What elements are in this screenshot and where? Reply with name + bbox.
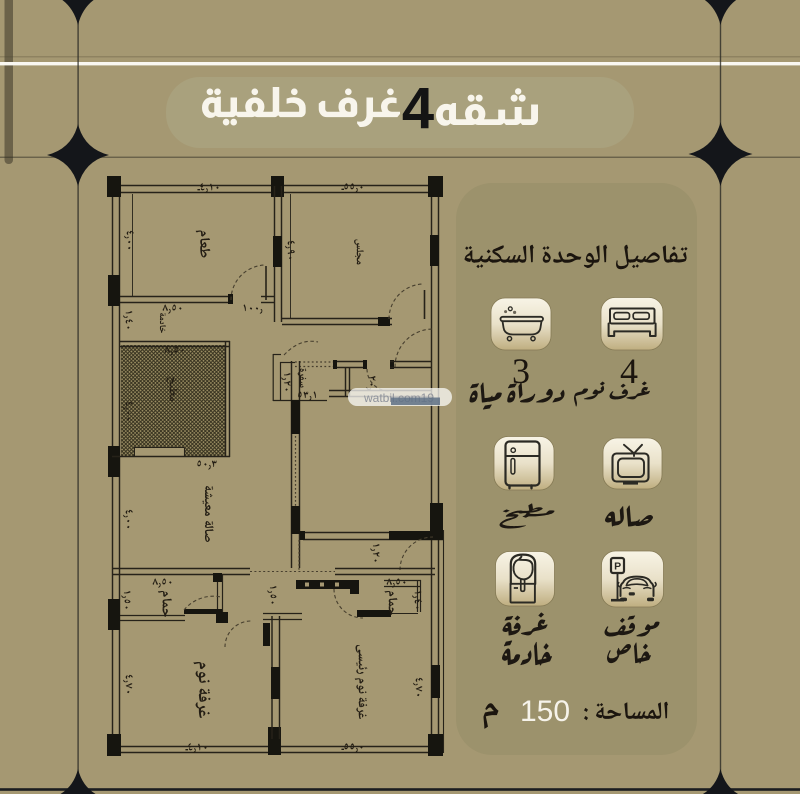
svg-text:4: 4 (402, 76, 434, 141)
svg-text:150: 150 (520, 695, 570, 728)
svg-text:P: P (614, 561, 621, 573)
